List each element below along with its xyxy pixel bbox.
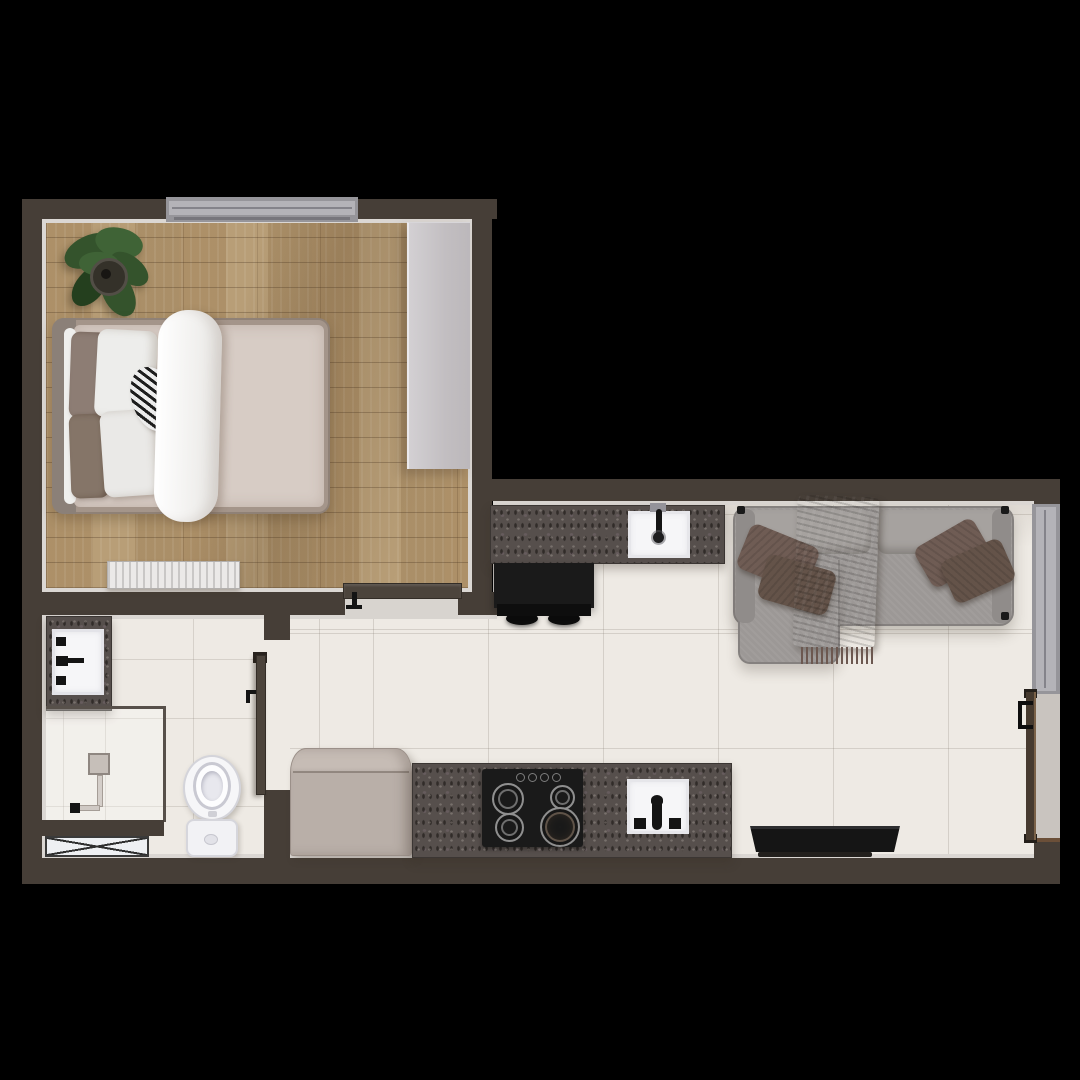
radiator	[107, 561, 240, 589]
toilet	[183, 755, 241, 857]
bathroom-door-handle-stem	[246, 690, 250, 703]
kitchen-sink-tap-handle	[634, 818, 646, 829]
wall-bedroom-top-left	[22, 199, 170, 219]
hob-burner-large	[540, 807, 580, 847]
throw-blanket	[792, 495, 879, 650]
bedroom-window	[166, 197, 358, 222]
bedroom-window-sill	[174, 217, 350, 220]
living-window-mullion	[1044, 510, 1046, 688]
hob-burner	[495, 813, 524, 842]
shower-control-knob	[70, 803, 80, 813]
shower-glass-side	[163, 706, 166, 822]
plant-pot-center	[101, 269, 111, 279]
toilet-bowl-cavity	[201, 771, 223, 801]
fridge	[290, 748, 412, 856]
living-window-glass	[1036, 507, 1056, 691]
entrance-door-recess	[1034, 692, 1060, 842]
kitchen-sink-tap-handle	[669, 818, 681, 829]
wardrobe	[407, 222, 470, 469]
potted-plant	[63, 228, 151, 320]
hob-knob	[516, 773, 525, 782]
vanity-tap-handle	[56, 676, 66, 685]
hob-burner	[492, 783, 524, 815]
floor-plan-canvas	[0, 0, 1080, 1080]
wall-under-shower	[42, 820, 164, 836]
bar-table	[494, 563, 594, 608]
sofa-foot	[1001, 612, 1009, 620]
fridge-seam	[293, 771, 409, 773]
vanity-faucet-spout	[68, 658, 84, 663]
vanity-faucet	[56, 656, 68, 666]
kitchen-sink-top-faucet-knob	[653, 532, 664, 543]
bedroom-door-handle-bar	[346, 605, 362, 609]
tv-base	[758, 852, 872, 857]
tv-screen	[750, 826, 900, 852]
living-window	[1032, 504, 1060, 694]
wall-bathroom-stub-bottom	[264, 790, 290, 858]
wall-bedroom-bottom-right	[458, 592, 497, 615]
bathroom-door-threshold	[264, 640, 290, 790]
wall-bedroom-bottom-left	[22, 592, 345, 615]
wall-bedroom-right	[472, 199, 492, 615]
throw-blanket-fringe	[801, 647, 875, 664]
wall-left-outer	[22, 199, 42, 884]
hob	[482, 769, 583, 847]
shower-head	[88, 753, 110, 775]
sofa	[733, 500, 1014, 666]
utility-shaft	[45, 836, 149, 857]
wall-bottom-outer	[22, 858, 1060, 884]
hob-knob	[552, 773, 561, 782]
shower-pipe	[97, 775, 103, 807]
bedroom-door-leaf	[343, 583, 462, 599]
kitchen-sink-bottom-faucet-knob	[651, 795, 663, 805]
vanity-tap-handle	[56, 637, 66, 646]
entrance-door-handle	[1018, 701, 1033, 729]
wall-living-top	[472, 479, 1060, 501]
bar-table-edge	[497, 604, 591, 616]
hob-knob	[528, 773, 537, 782]
sofa-foot	[1001, 506, 1009, 514]
toilet-hinge	[208, 811, 217, 817]
toilet-flush-button	[204, 834, 218, 845]
bathroom-door-leaf	[256, 655, 266, 795]
hob-knob	[540, 773, 549, 782]
sofa-foot	[737, 506, 745, 514]
wall-bathroom-stub-top	[264, 615, 290, 640]
double-bed	[52, 318, 330, 514]
bedroom-window-mullion	[172, 207, 352, 209]
white-duvet-runner	[153, 309, 223, 523]
